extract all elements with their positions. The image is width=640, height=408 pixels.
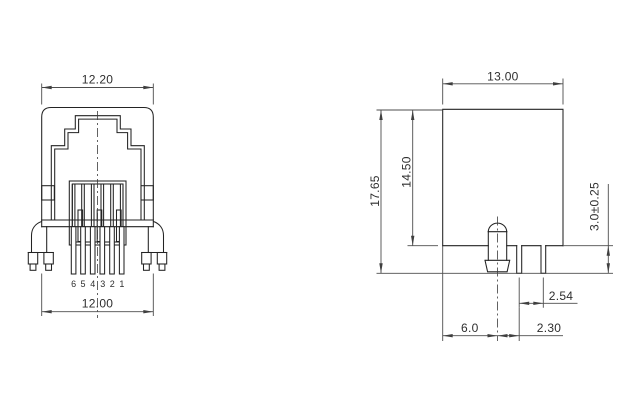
engineering-drawing: 6 5 4 3 2 1 12.20 12.00 [0,0,640,408]
dim-side-height-body: 14.50 [400,110,415,246]
dim-side-width-top: 13.00 [443,69,563,104]
dim-text-17-65: 17.65 [368,175,382,207]
pin-number-2: 2 [110,279,115,289]
dim-text-6-0: 6.0 [461,321,479,335]
front-latch-window-right [141,186,153,200]
dim-text-13-00: 13.00 [487,69,519,83]
front-latch-window-left [42,186,55,200]
dim-text-12-20: 12.20 [82,73,114,87]
dim-side-pin-pitch: 2.54 [519,278,577,308]
dim-text-2-30: 2.30 [537,321,562,335]
dim-side-bottom-chain: 6.0 2.30 [443,308,563,341]
dim-text-3-0: 3.0±0.25 [588,182,602,231]
dim-front-width-top: 12.20 [42,73,154,105]
side-view: 13.00 17.65 14.50 3.0±0.25 [368,69,613,341]
front-view: 6 5 4 3 2 1 12.20 12.00 [28,73,166,319]
pin-number-5: 5 [80,279,85,289]
pin-number-1: 1 [119,279,124,289]
dim-side-height-overall: 17.65 [368,110,383,273]
dim-side-pin-protrusion: 3.0±0.25 [588,182,611,273]
side-pins [517,246,546,274]
dim-text-12-00: 12.00 [82,297,114,311]
pin-number-3: 3 [100,279,105,289]
drawing-sheet: 6 5 4 3 2 1 12.20 12.00 [0,0,640,408]
dim-text-2-54: 2.54 [549,289,574,303]
pin-number-4: 4 [90,279,95,289]
dim-text-14-50: 14.50 [400,156,414,188]
pin-number-6: 6 [71,279,76,289]
